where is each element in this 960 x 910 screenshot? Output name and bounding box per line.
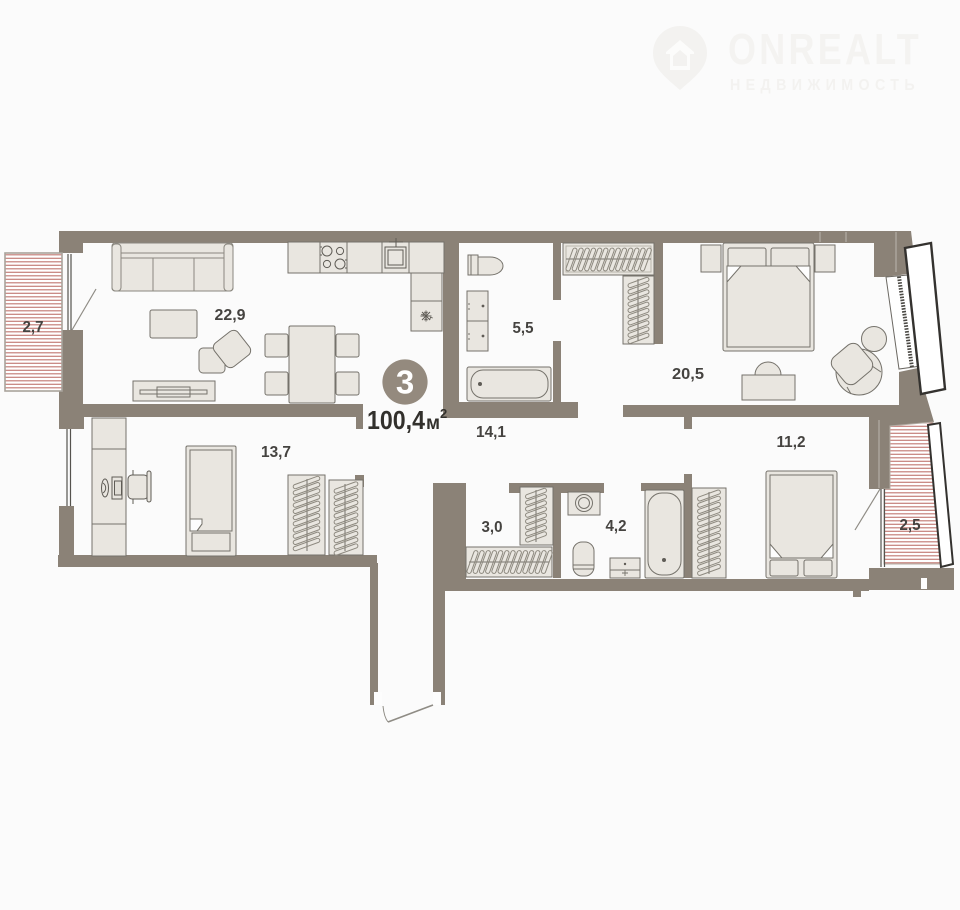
svg-text:14,1: 14,1 bbox=[476, 424, 506, 441]
svg-text:11,2: 11,2 bbox=[777, 434, 806, 451]
svg-text:2,5: 2,5 bbox=[900, 517, 921, 534]
svg-text:3,0: 3,0 bbox=[482, 519, 503, 536]
svg-text:22,9: 22,9 bbox=[215, 307, 246, 324]
svg-text:5,5: 5,5 bbox=[513, 320, 534, 337]
svg-text:20,5: 20,5 bbox=[672, 366, 704, 383]
svg-text:2,7: 2,7 bbox=[23, 319, 44, 336]
svg-text:13,7: 13,7 bbox=[261, 444, 291, 461]
svg-text:м: м bbox=[426, 413, 440, 434]
svg-text:3: 3 bbox=[396, 364, 414, 401]
svg-text:НЕДВИЖИМОСТЬ: НЕДВИЖИМОСТЬ bbox=[730, 77, 920, 94]
svg-text:100,4: 100,4 bbox=[367, 405, 425, 435]
svg-text:ONREALT: ONREALT bbox=[728, 25, 922, 74]
svg-text:2: 2 bbox=[440, 406, 447, 421]
svg-text:4,2: 4,2 bbox=[606, 518, 627, 535]
